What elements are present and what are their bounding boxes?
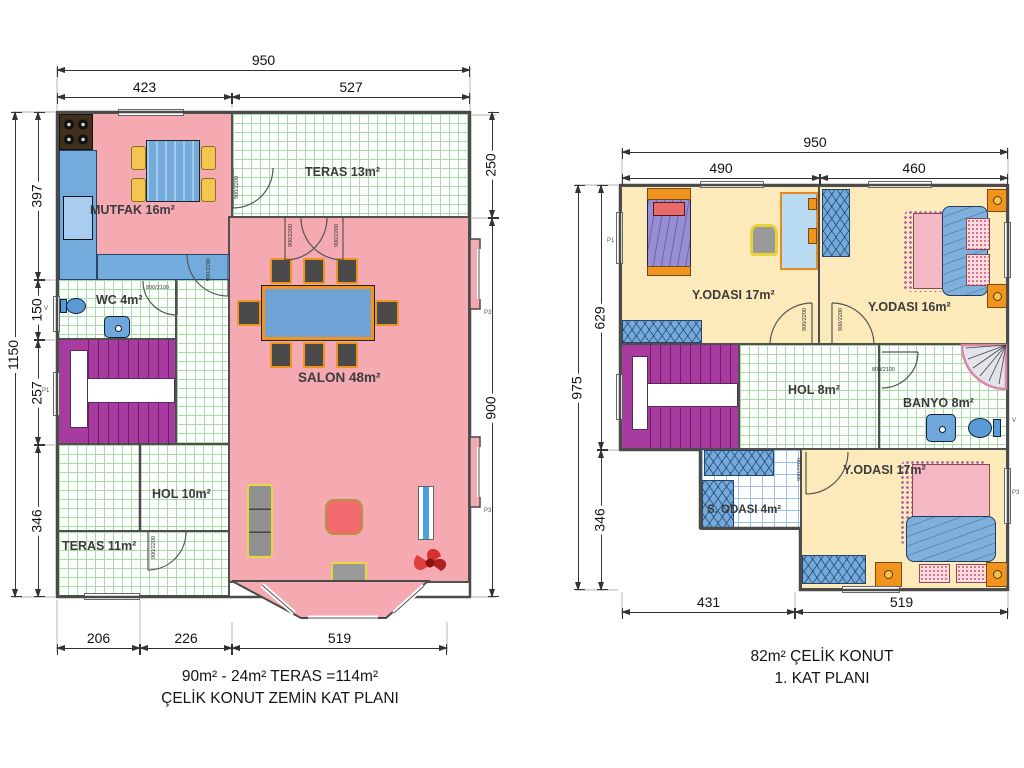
room-label-teras-alt: TERAS 11m² [62, 539, 136, 553]
window-tag: V [44, 306, 48, 312]
stair-landing [632, 356, 648, 430]
bed-footboard [647, 266, 691, 276]
wardrobe [822, 189, 850, 257]
armchair [331, 562, 367, 592]
dim-right-a: 250 [492, 112, 493, 218]
dim-r-left-a: 629 [601, 185, 602, 450]
tv-unit [418, 486, 434, 540]
wardrobe [802, 555, 866, 584]
coffee-table [325, 499, 363, 535]
dim-r-left-b: 346 [601, 450, 602, 590]
corridor [175, 278, 230, 445]
dim-left-a: 397 [38, 112, 39, 280]
bed-blanket [906, 516, 996, 562]
floor-plan-sheet: MUTFAK 16m² TERAS 13m² WC 4m² SALON 48m²… [0, 0, 1024, 768]
window-mark [84, 593, 140, 600]
stair-steps [88, 340, 175, 378]
chair [303, 258, 325, 284]
stair-steps [650, 408, 738, 448]
stair-steps [88, 403, 175, 445]
pillow [919, 564, 950, 583]
window-mark [616, 374, 623, 420]
room-label-yatak1: Y.ODASI 17m² [692, 288, 775, 302]
chair [131, 178, 146, 202]
room-label-yatak2: Y.ODASI 16m² [868, 300, 951, 314]
room-label-sandik: S. ODASI 4m² [707, 504, 781, 516]
dim-r-bottom-b: 519 [795, 612, 1008, 613]
window-mark [700, 181, 764, 188]
window-mark [1004, 468, 1011, 524]
wardrobe [704, 450, 774, 476]
right-caption-title: 1. KAT PLANI [672, 668, 972, 690]
nightstand [987, 189, 1007, 212]
bed-headboard [647, 188, 691, 200]
dim-r-top-a: 490 [622, 178, 820, 179]
room-label-yatak3: Y.ODASI 17m² [843, 463, 926, 477]
stair-landing [78, 378, 175, 403]
door-size-tag: 900/2200 [206, 258, 212, 281]
chair [201, 146, 216, 170]
chair [270, 342, 292, 368]
left-caption-title: ÇELİK KONUT ZEMİN KAT PLANI [115, 688, 445, 710]
dim-top-total: 950 [57, 70, 470, 71]
dim-bottom-b: 226 [140, 648, 232, 649]
dim-right-b: 900 [492, 218, 493, 597]
dim-left-c: 257 [38, 340, 39, 445]
door-size-tag: 900/2200 [234, 176, 240, 199]
room-label-mutfak: MUTFAK 16m² [90, 203, 175, 217]
stair-landing [640, 383, 738, 407]
room-label-salon: SALON 48m² [298, 370, 381, 385]
dim-top-b: 527 [232, 97, 470, 98]
chair [336, 342, 358, 368]
chair [336, 258, 358, 284]
nightstand [986, 562, 1008, 587]
dim-left-b: 150 [38, 280, 39, 340]
door-size-tag: 900/2200 [334, 224, 340, 247]
window-mark [842, 586, 900, 593]
window-mark [53, 372, 60, 416]
toilet-icon [66, 298, 86, 314]
pillow [966, 254, 990, 286]
kitchen-sink-icon [63, 196, 93, 240]
desk-drawer [808, 228, 817, 244]
pillow [956, 564, 987, 583]
door-size-tag: 900/2200 [797, 458, 803, 481]
room-label-teras-ust: TERAS 13m² [305, 165, 380, 179]
room-label-banyo: BANYO 8m² [903, 396, 974, 410]
stove-icon [59, 114, 93, 150]
window-mark [616, 212, 623, 264]
dim-r-bottom-a: 431 [622, 612, 795, 613]
dining-table [262, 286, 374, 340]
right-plan-caption: 82m² ÇELİK KONUT 1. KAT PLANI [672, 646, 972, 690]
chair [131, 146, 146, 170]
window-tag: P3 [484, 508, 491, 514]
kitchen-table [146, 140, 200, 202]
room-label-wc: WC 4m² [96, 293, 143, 307]
left-caption-area: 90m² - 24m² TERAS =114m² [115, 666, 445, 688]
pillow [653, 202, 685, 216]
room-label-hol: HOL 8m² [788, 383, 840, 397]
chair [270, 258, 292, 284]
chair [201, 178, 216, 202]
toilet-tank [60, 299, 67, 313]
door-size-tag: 800/2100 [146, 285, 169, 291]
wardrobe [622, 320, 702, 343]
window-tag: P1 [607, 238, 614, 244]
pillow [966, 218, 990, 250]
room-label-hol: HOL 10m² [152, 487, 211, 501]
stair-landing [70, 350, 88, 428]
door-size-tag: 900/2200 [151, 536, 157, 559]
dim-bottom-a: 206 [57, 648, 140, 649]
dim-left-total: 1150 [15, 112, 16, 597]
nightstand [987, 284, 1007, 308]
chair [303, 342, 325, 368]
sofa [247, 484, 273, 558]
dim-r-left-total: 975 [578, 185, 579, 590]
door-size-tag: 900/2200 [288, 224, 294, 247]
left-plan-caption: 90m² - 24m² TERAS =114m² ÇELİK KONUT ZEM… [115, 666, 445, 710]
window-mark [53, 296, 60, 332]
window-mark [868, 181, 932, 188]
chair [375, 300, 399, 326]
toilet-icon [968, 418, 992, 438]
door-size-tag: 900/2200 [838, 308, 844, 331]
bay-window [232, 581, 428, 618]
nightstand [875, 562, 902, 587]
desk-lamp-icon [808, 198, 817, 210]
door-size-tag: 900/2200 [802, 308, 808, 331]
stair-steps [650, 345, 738, 383]
projecting-windows [470, 239, 480, 507]
sink-icon [104, 316, 130, 338]
window-tag: P3 [484, 310, 491, 316]
window-tag: P1 [42, 388, 49, 394]
window-mark [118, 109, 184, 116]
dim-r-top-total: 950 [622, 152, 1008, 153]
desk-chair [750, 224, 778, 256]
chair [237, 300, 261, 326]
toilet-tank [993, 419, 1001, 437]
sink-icon [926, 414, 956, 442]
window-tag: V [1012, 418, 1016, 424]
dim-r-top-b: 460 [820, 178, 1008, 179]
window-tag: P3 [1012, 490, 1019, 496]
right-caption-area: 82m² ÇELİK KONUT [672, 646, 972, 668]
window-mark [1004, 222, 1011, 278]
door-size-tag: 800/2100 [872, 367, 895, 373]
dim-bottom-c: 519 [232, 648, 447, 649]
dim-left-d: 346 [38, 445, 39, 597]
dim-top-a: 423 [57, 97, 232, 98]
